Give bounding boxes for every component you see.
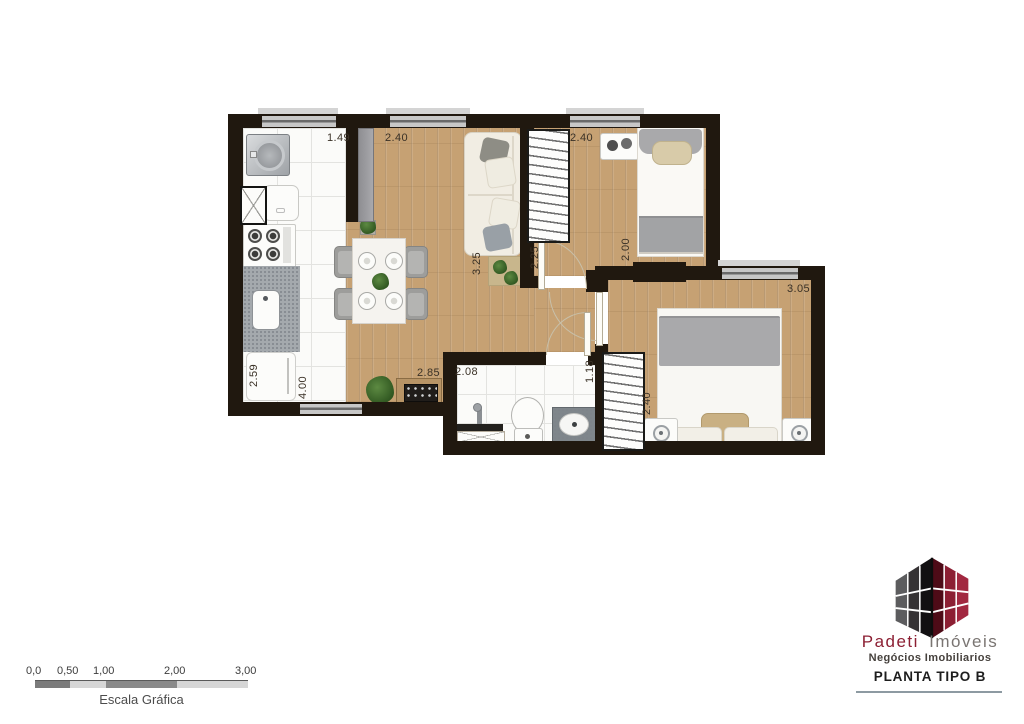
dining-table [352,238,406,324]
dimension-label: 2.00 [620,238,632,261]
plate-icon [385,252,403,270]
plate-icon [358,252,376,270]
wall [811,266,825,455]
scale-bar: 0,0 0,50 1,00 2,00 3,00 Escala Gráfica [0,660,280,720]
dimension-label: 2.40 [641,392,653,415]
dimension-label: 2.40 [570,132,593,144]
wall [586,270,608,292]
plant-icon [504,271,518,285]
scale-tick-label: 2,00 [164,665,185,677]
flush-button-icon [525,434,530,439]
scale-bar-strip [35,680,248,687]
stool-icon [621,138,632,149]
service-window [300,404,362,414]
window-sill [718,260,800,266]
scale-tick-label: 1,00 [93,665,114,677]
tv-console [396,378,442,404]
dimension-label: 2.40 [385,132,408,144]
stove-knob-strip [283,227,291,263]
lamp-icon [791,425,808,442]
stove-burner [248,229,262,243]
stove-burner [266,229,280,243]
washing-machine [246,134,290,176]
table-centerpiece-plant-icon [372,273,389,290]
brand-logo [840,548,1024,708]
wall [633,262,686,282]
plant-icon [493,260,507,274]
brand-divider [856,691,1002,693]
tv [404,384,438,402]
door-leaf [596,292,603,346]
wardrobe [602,352,645,451]
faucet-icon [572,422,577,427]
wall [706,114,720,266]
stove [243,224,296,268]
brand-name-red: Padeti [862,632,919,651]
window [570,116,640,127]
bed-foot-line [639,252,703,254]
washer-drum [254,140,285,171]
window-sill [566,108,644,114]
kitchen-sink [252,290,280,330]
dimension-label: 2.25 [529,246,541,269]
plant-icon [366,376,394,404]
dining-chair [404,288,428,320]
bed-blanket [659,316,780,366]
single-bed [637,127,704,257]
dimension-label: 2.85 [417,367,440,379]
faucet-icon [263,296,268,301]
window-sill [258,108,338,114]
fridge-door-line [287,358,289,394]
building-icon [884,552,980,640]
floorplan-page: 1.49 2.40 2.40 3.05 2.08 2.85 3.25 2.25 … [0,0,1024,724]
bedroom2-side-table [600,133,639,160]
plan-title: PLANTA TIPO B [845,669,1015,684]
rug [488,256,524,286]
window [262,116,336,127]
sofa [464,132,522,256]
stove-burner [266,247,280,261]
dining-chair [404,246,428,278]
half-wall-counter [358,128,374,222]
bed-blanket [639,216,703,252]
dimension-label: 1.49 [327,132,350,144]
plate-icon [358,292,376,310]
brand-name: Padeti Imóveis [840,632,1020,652]
sofa-pillow [482,223,513,253]
window [390,116,466,127]
brand-name-gray: Imóveis [929,632,998,651]
scale-tick-label: 0,0 [26,665,41,677]
washer-button [250,151,257,158]
dimension-label: 2.59 [248,364,260,387]
wall [228,114,243,416]
dimension-label: 1.18 [584,360,596,383]
dimension-label: 4.00 [297,376,309,399]
scale-tick-label: 3,00 [235,665,256,677]
shower-partition [457,424,503,431]
dimension-label: 2.08 [455,366,478,378]
stove-burner [248,247,262,261]
shower-head-icon [473,403,482,412]
laundry-tank [263,185,299,221]
sofa-pillow [484,156,517,189]
window-sill [386,108,470,114]
service-shaft [240,186,267,225]
bathroom-sink [559,413,589,436]
scale-tick-label: 0,50 [57,665,78,677]
scale-bar-caption: Escala Gráfica [35,692,248,707]
dimension-label: 3.05 [787,283,810,295]
plate-icon [385,292,403,310]
wardrobe [527,129,570,243]
window [722,268,798,279]
dimension-label: 3.25 [471,252,483,275]
door-leaf [584,312,591,356]
sofa-seam [468,194,514,196]
bed-pillow [652,141,692,165]
stool-icon [607,140,618,151]
tank-drain [276,208,285,213]
brand-tagline: Negócios Imobiliarios [840,652,1020,664]
lamp-icon [653,425,670,442]
wall [443,352,546,365]
